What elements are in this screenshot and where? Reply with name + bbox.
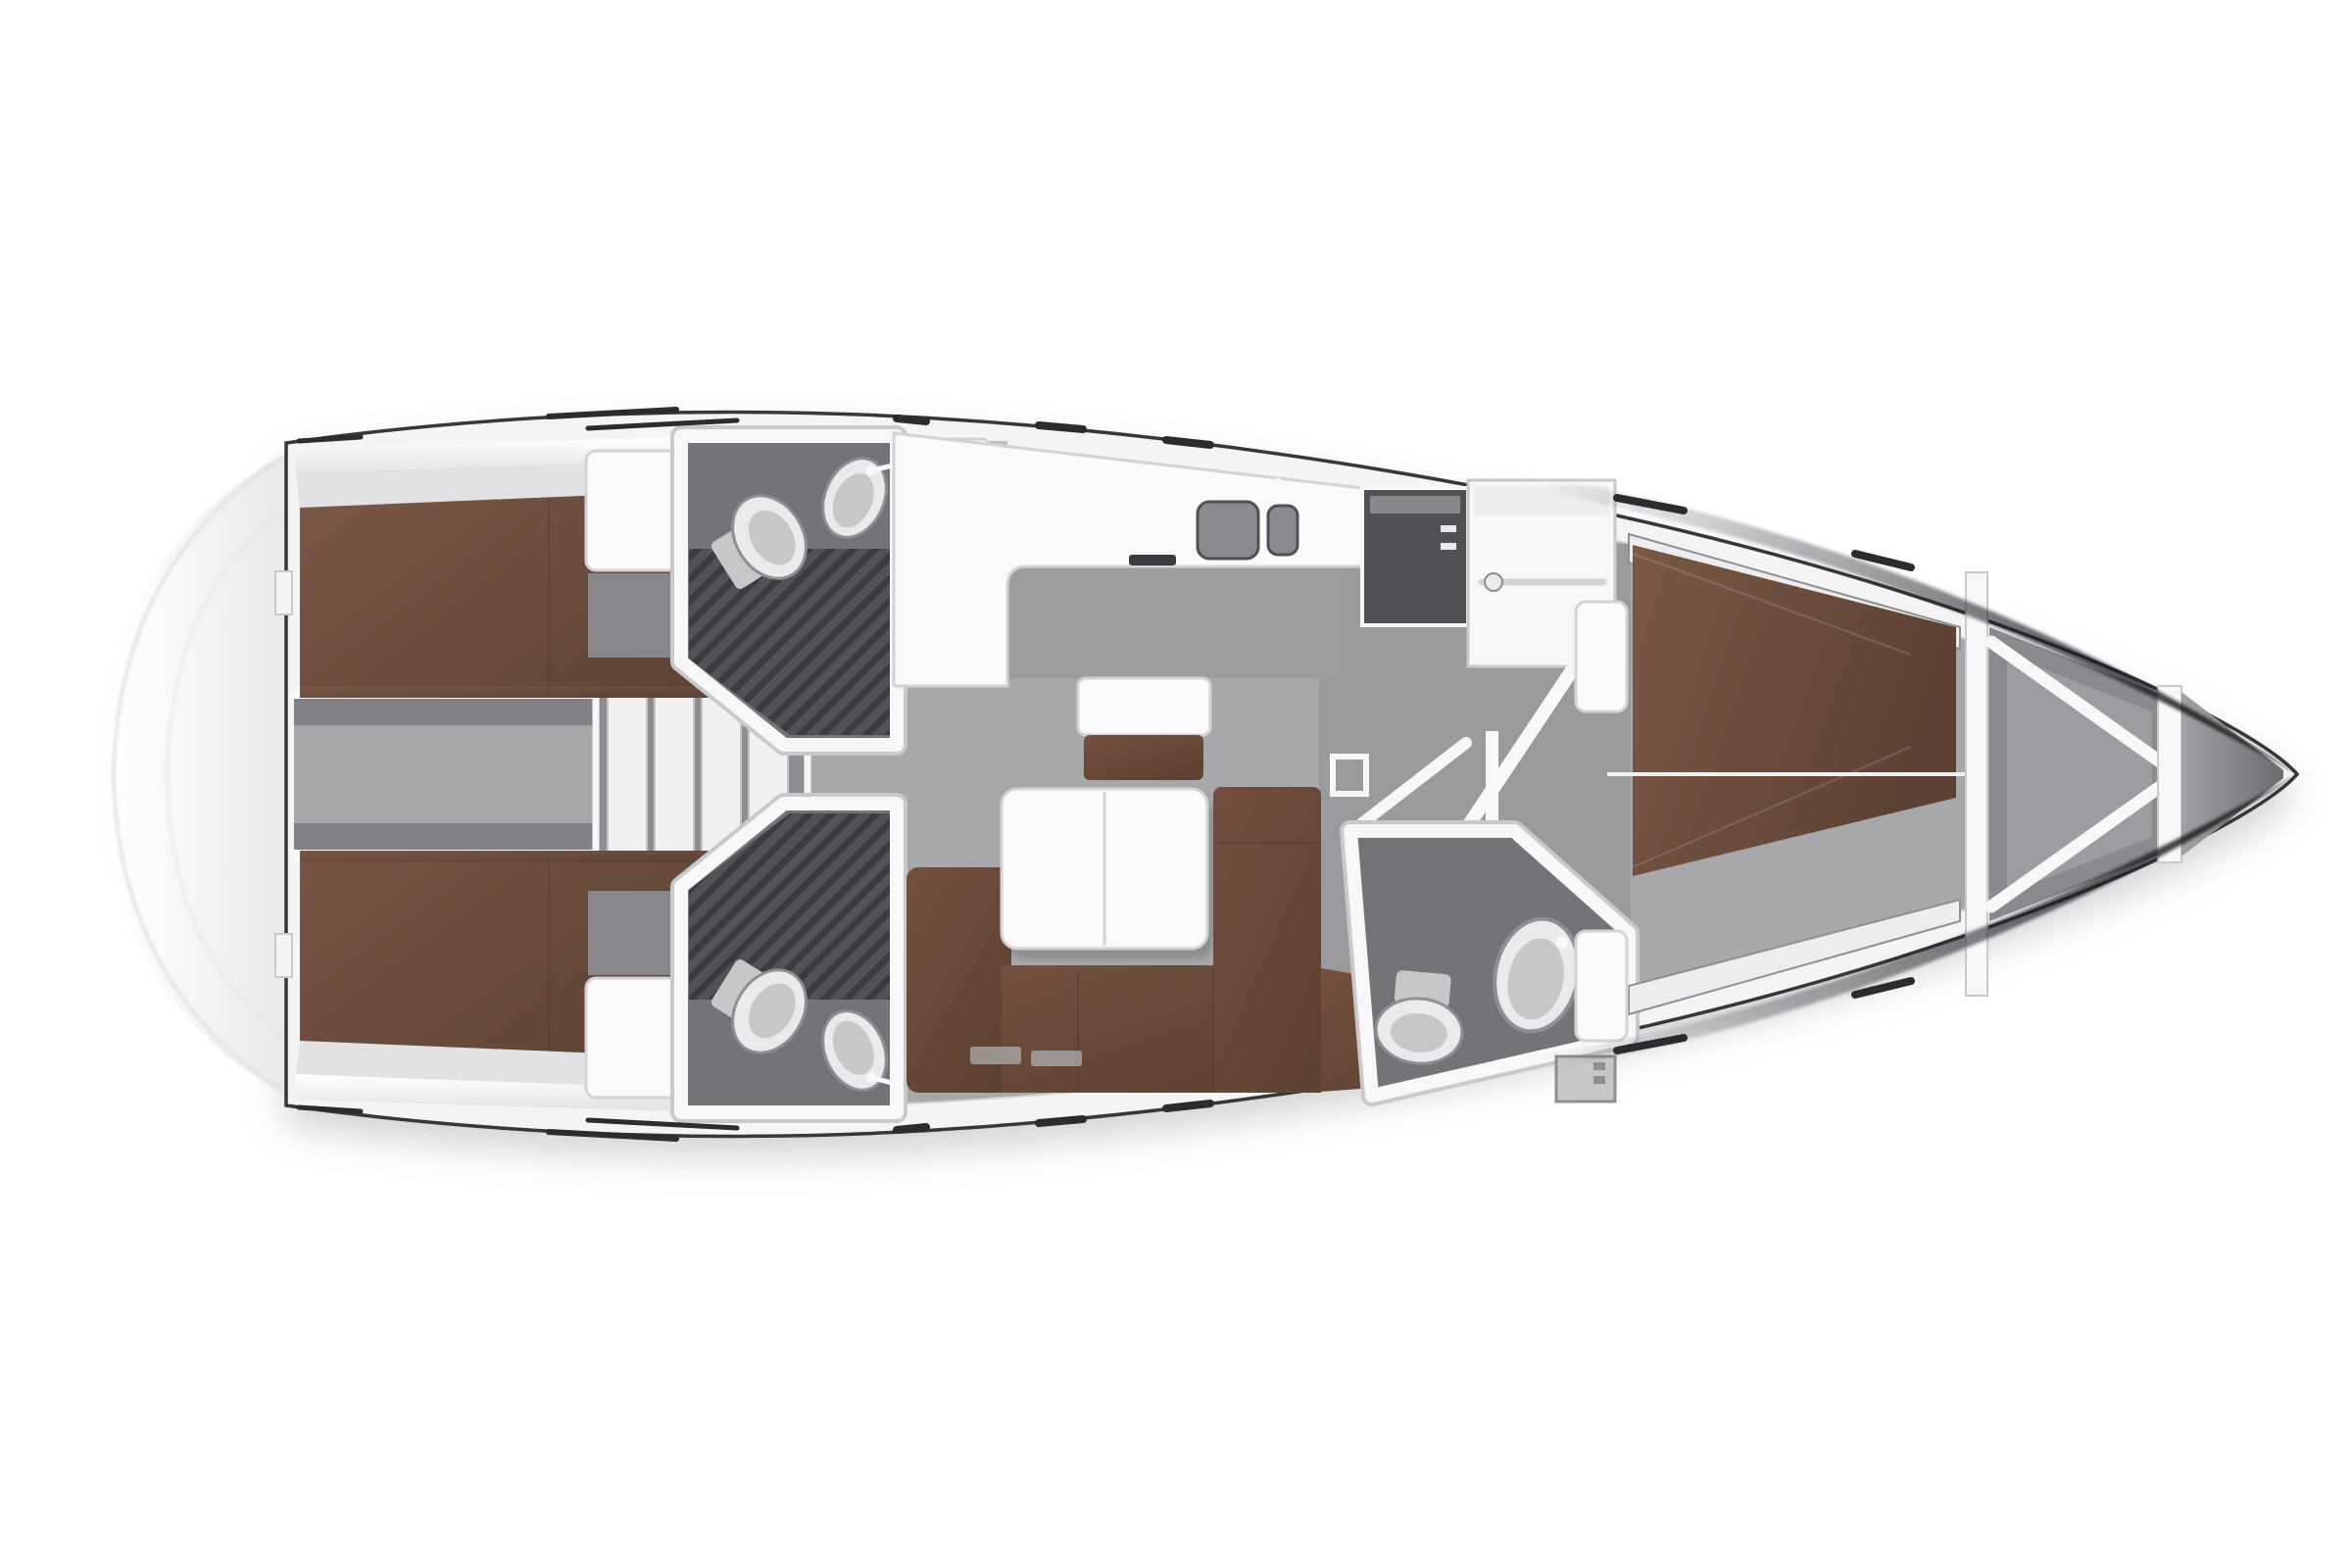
u-sofa bbox=[906, 787, 1492, 1093]
anchor-locker bbox=[1989, 627, 2283, 921]
hull-topside-shading bbox=[1462, 465, 2297, 1084]
hull-hatch-tick bbox=[1855, 554, 1911, 567]
transom-notch bbox=[275, 934, 292, 977]
pocket-floor bbox=[897, 441, 1007, 629]
washbasin bbox=[811, 445, 901, 548]
salon bbox=[906, 678, 1492, 1093]
head-room bbox=[681, 436, 897, 745]
hull-hatch-tick bbox=[1617, 1038, 1684, 1051]
toilet-tank bbox=[710, 957, 767, 1022]
berth-quilt-seam bbox=[1633, 747, 1911, 867]
shower-grate bbox=[689, 813, 890, 1000]
head-forward bbox=[1350, 831, 1629, 1102]
hatch-rail bbox=[588, 420, 737, 428]
transom-notches bbox=[275, 571, 292, 977]
toilet bbox=[700, 945, 821, 1066]
faucet bbox=[864, 1071, 877, 1084]
platform-arc-outer bbox=[114, 459, 282, 1090]
deck-step-strip bbox=[970, 1047, 1021, 1064]
hull-deck bbox=[286, 413, 2297, 1137]
hull-hatch-tick bbox=[897, 1127, 926, 1130]
forward-cabin bbox=[1576, 534, 1987, 1041]
step-tread bbox=[608, 672, 647, 878]
deck-details bbox=[299, 410, 1911, 1139]
cabinet-body bbox=[1362, 488, 1468, 625]
table-top bbox=[1002, 789, 1207, 949]
galley bbox=[894, 433, 1468, 686]
engine-band bbox=[294, 698, 600, 851]
engine-compartment bbox=[294, 686, 600, 862]
bedside-cabinet bbox=[586, 451, 678, 570]
head-wall-outer bbox=[1350, 831, 1629, 1096]
head-aft-port bbox=[681, 436, 900, 745]
wardrobe bbox=[1468, 480, 1615, 666]
head-wall-outer bbox=[681, 804, 897, 1112]
swim-platform bbox=[100, 453, 286, 1096]
companionway-hatch-garage bbox=[897, 439, 1007, 629]
hull-hatch-tick bbox=[1855, 981, 1911, 995]
hull-hatch-tick bbox=[897, 418, 926, 421]
faucet bbox=[1554, 935, 1568, 949]
head-aft-starboard bbox=[681, 804, 900, 1112]
locker-bulkhead bbox=[2158, 686, 2181, 862]
head-room bbox=[681, 804, 897, 1112]
stern-corner-mark bbox=[299, 437, 361, 441]
wardrobe-door-open-large bbox=[1470, 659, 1580, 985]
hatch-rail bbox=[549, 410, 676, 416]
locker-base bbox=[1989, 627, 2170, 921]
toilet-seat bbox=[1389, 1011, 1448, 1055]
toilet bbox=[700, 482, 821, 604]
bedside-cabinet bbox=[586, 978, 678, 1098]
galley-faucet bbox=[1255, 490, 1267, 502]
hatch-box bbox=[900, 439, 990, 541]
locker-inner bbox=[2007, 655, 2152, 894]
sofa-left-arm bbox=[906, 867, 1011, 1093]
platform-fade bbox=[100, 453, 286, 1096]
double-berth-lower bbox=[300, 686, 784, 698]
locker-strut bbox=[1991, 784, 2164, 906]
wardrobe-shade bbox=[1474, 486, 1609, 515]
shower-grate bbox=[689, 549, 890, 735]
salon-table bbox=[1002, 789, 1213, 958]
toilet-seat bbox=[739, 502, 805, 573]
double-berth bbox=[300, 806, 784, 1056]
platform-arc-inner bbox=[167, 510, 284, 1039]
shelf-band bbox=[296, 461, 676, 508]
cabinet-latch bbox=[1441, 543, 1456, 550]
aft-cabin-starboard bbox=[296, 806, 784, 1111]
basin-outer bbox=[1485, 911, 1589, 1040]
transom-notch bbox=[275, 571, 292, 614]
table-shadow bbox=[1007, 800, 1213, 958]
step-tread bbox=[749, 661, 788, 890]
sink-basin-large bbox=[1198, 502, 1258, 559]
galley-floor bbox=[1007, 549, 1343, 678]
vanity-top bbox=[588, 573, 676, 658]
yacht-floor-plan bbox=[0, 0, 2352, 1568]
double-berth-lower bbox=[300, 851, 784, 862]
shelf-ledge bbox=[296, 437, 676, 474]
locker-strut bbox=[1991, 642, 2164, 764]
stool-base bbox=[1084, 735, 1203, 780]
galley-faucet-arm bbox=[1261, 480, 1278, 496]
berth-foot-trim bbox=[1966, 572, 1987, 996]
hull-hatch-tick bbox=[1039, 1119, 1083, 1123]
wardrobe-body bbox=[1468, 480, 1615, 666]
basin-outer bbox=[811, 1001, 899, 1100]
hatch-rail bbox=[549, 1132, 676, 1139]
aft-cabin-port bbox=[296, 437, 784, 743]
faucet-arm bbox=[871, 1070, 893, 1090]
step-tread bbox=[702, 664, 741, 886]
hull-hatch-tick bbox=[1617, 498, 1684, 511]
hull-ambient-shadow bbox=[286, 432, 2297, 1156]
galley-counter bbox=[894, 433, 1362, 686]
stern-corner-mark bbox=[299, 1107, 361, 1111]
topside-dark-lower bbox=[1462, 774, 2297, 1084]
engine-mid-band bbox=[294, 725, 600, 823]
switch-panel bbox=[1333, 757, 1366, 794]
vanity-top bbox=[588, 891, 676, 975]
corridor bbox=[1333, 659, 1580, 985]
cabin-door-open bbox=[1362, 743, 1466, 900]
stove-cabinet bbox=[1362, 488, 1468, 625]
shelf-band bbox=[296, 1041, 676, 1088]
panel bbox=[1556, 1056, 1615, 1102]
stool-seat bbox=[1078, 678, 1210, 780]
toilet bbox=[1373, 968, 1467, 1066]
engine-wall-top bbox=[294, 686, 600, 699]
stool-top bbox=[1078, 678, 1210, 735]
basin-inner bbox=[1500, 933, 1571, 1025]
head-room bbox=[1350, 831, 1629, 1096]
hull-hatch-tick bbox=[1039, 425, 1083, 429]
basin-inner bbox=[825, 467, 882, 534]
sink-basin-small bbox=[1268, 506, 1298, 555]
sofa-extension bbox=[1321, 968, 1492, 1092]
hull-hatch-tick bbox=[1166, 1103, 1210, 1108]
hull-hatch-tick bbox=[1166, 440, 1210, 445]
door-post bbox=[1486, 731, 1498, 923]
washbasin bbox=[811, 1001, 901, 1103]
toilet-tank bbox=[1394, 970, 1451, 1008]
engine-wall-bottom bbox=[294, 850, 600, 862]
head-wall-outer bbox=[681, 436, 897, 745]
panel-btn bbox=[1593, 1076, 1605, 1084]
basin-outer bbox=[811, 448, 899, 547]
hatch-rail bbox=[588, 1120, 737, 1128]
deck-step-strip bbox=[1031, 1051, 1082, 1066]
washbasin-pedestal bbox=[1485, 911, 1589, 1040]
hull bbox=[286, 413, 2297, 1137]
hull-shelf-top bbox=[1629, 534, 1960, 649]
sofa-right-arm bbox=[1213, 787, 1321, 1093]
toilet-seat bbox=[739, 975, 805, 1047]
bedside-shelf bbox=[1576, 602, 1627, 711]
toilet-bowl bbox=[717, 956, 820, 1066]
shelf-ledge bbox=[296, 1074, 676, 1111]
topside-dark-upper bbox=[1462, 465, 2297, 774]
sofa-bench bbox=[1002, 965, 1321, 1093]
corridor-floor bbox=[1319, 544, 1631, 985]
panel-btn bbox=[1593, 1062, 1605, 1070]
faucet-arm bbox=[871, 459, 893, 478]
toilet-bowl bbox=[1373, 995, 1464, 1066]
shadow-blob bbox=[286, 432, 2297, 1156]
hull-shelf-bottom bbox=[1629, 900, 1960, 1014]
toilet-bowl bbox=[717, 482, 820, 592]
bedside-shelf bbox=[1576, 931, 1627, 1041]
companionway-shaft bbox=[596, 642, 808, 906]
bow-tip-deck bbox=[2181, 692, 2283, 857]
toilet-tank bbox=[710, 527, 767, 592]
cabinet-top-line bbox=[1370, 496, 1460, 514]
companionway-steps bbox=[608, 661, 788, 890]
interior-floor bbox=[329, 441, 2243, 1107]
berth-quilt-seam bbox=[1633, 554, 1911, 655]
companionway bbox=[596, 642, 808, 906]
v-berth bbox=[1633, 545, 1956, 876]
shower-mixer-panel bbox=[1556, 1056, 1615, 1102]
basin-inner bbox=[825, 1014, 882, 1081]
step-tread bbox=[655, 668, 694, 882]
cabinet-latch bbox=[1441, 525, 1456, 532]
faucet bbox=[864, 465, 877, 477]
counter-vent bbox=[1129, 555, 1176, 565]
wardrobe-knob bbox=[1485, 573, 1502, 591]
double-berth bbox=[300, 492, 784, 743]
